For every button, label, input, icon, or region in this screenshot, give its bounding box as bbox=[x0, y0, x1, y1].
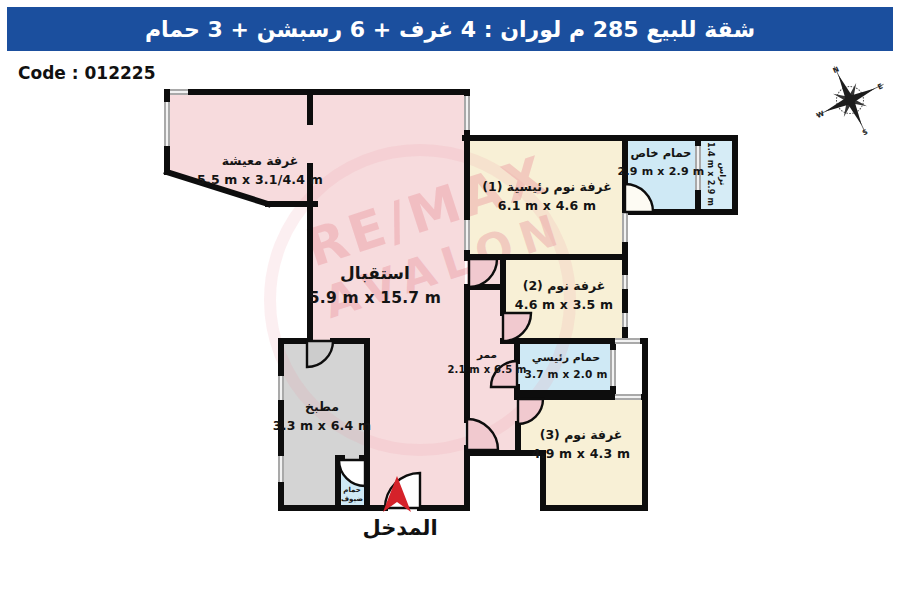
room-label-terrace: تراس 1.4 m x 2.9 m bbox=[703, 142, 729, 206]
room-name: استقبال bbox=[309, 260, 441, 286]
room-name: غرفة نوم (3) bbox=[532, 425, 630, 444]
compass-north-label: N bbox=[832, 65, 841, 75]
room-name: ممر bbox=[447, 346, 526, 362]
room-name: غرفة نوم (2) bbox=[515, 276, 613, 295]
room-dims: 5.5 m x 3.1/4.4 m bbox=[197, 170, 323, 189]
room-name: مطبخ bbox=[273, 397, 371, 416]
room-label-guest-bath: حمام ضيوف bbox=[337, 486, 367, 504]
room-dims: 4.9 m x 4.3 m bbox=[532, 444, 630, 463]
room-dims: 6.1 m x 4.6 m bbox=[482, 196, 611, 215]
room-dims: 3.7 m x 2.0 m bbox=[524, 366, 607, 382]
room-name: حمام رئيسي bbox=[524, 349, 607, 366]
compass-east-label: E bbox=[876, 82, 884, 91]
room-name: حمام ضيوف bbox=[337, 486, 367, 504]
room-dims: 5.9 m x 15.7 m bbox=[309, 286, 441, 310]
room-name: غرفة نوم رئيسية (1) bbox=[482, 177, 611, 196]
room-name: تراس bbox=[716, 142, 729, 206]
room-label-living-room: غرفة معيشة 5.5 m x 3.1/4.4 m bbox=[197, 151, 323, 190]
floorplan-drawing: RE/MAX AVALON bbox=[0, 0, 900, 600]
room-dims: 1.4 m x 2.9 m bbox=[703, 142, 715, 206]
room-label-bedroom-2: غرفة نوم (2) 4.6 m x 3.5 m bbox=[515, 276, 613, 315]
room-dims: 3.3 m x 6.4 m bbox=[273, 416, 371, 435]
entrance-label: المدخل bbox=[362, 512, 437, 545]
room-label-corridor: ممر 2.1 m x 6.5 m bbox=[447, 346, 526, 378]
compass-icon: N E S W bbox=[812, 60, 888, 140]
room-dims: 2.1 m x 6.5 m bbox=[447, 362, 526, 378]
compass-south-label: S bbox=[861, 128, 869, 137]
room-name: غرفة معيشة bbox=[197, 151, 323, 170]
room-label-master-bedroom: غرفة نوم رئيسية (1) 6.1 m x 4.6 m bbox=[482, 177, 611, 216]
room-label-bedroom-3: غرفة نوم (3) 4.9 m x 4.3 m bbox=[532, 425, 630, 464]
room-label-main-bath: حمام رئيسي 3.7 m x 2.0 m bbox=[524, 349, 607, 382]
room-label-reception: استقبال 5.9 m x 15.7 m bbox=[309, 260, 441, 310]
room-dims: 2.9 m x 2.9 m bbox=[618, 162, 705, 179]
floorplan-page: شقة للبيع 285 م لوران : 4 غرف + 6 رسبشن … bbox=[0, 0, 900, 600]
room-dims: 4.6 m x 3.5 m bbox=[515, 295, 613, 314]
room-label-kitchen: مطبخ 3.3 m x 6.4 m bbox=[273, 397, 371, 436]
compass-west-label: W bbox=[815, 109, 826, 120]
room-label-private-bath: حمام خاص 2.9 m x 2.9 m bbox=[618, 145, 705, 180]
room-name: حمام خاص bbox=[618, 145, 705, 163]
